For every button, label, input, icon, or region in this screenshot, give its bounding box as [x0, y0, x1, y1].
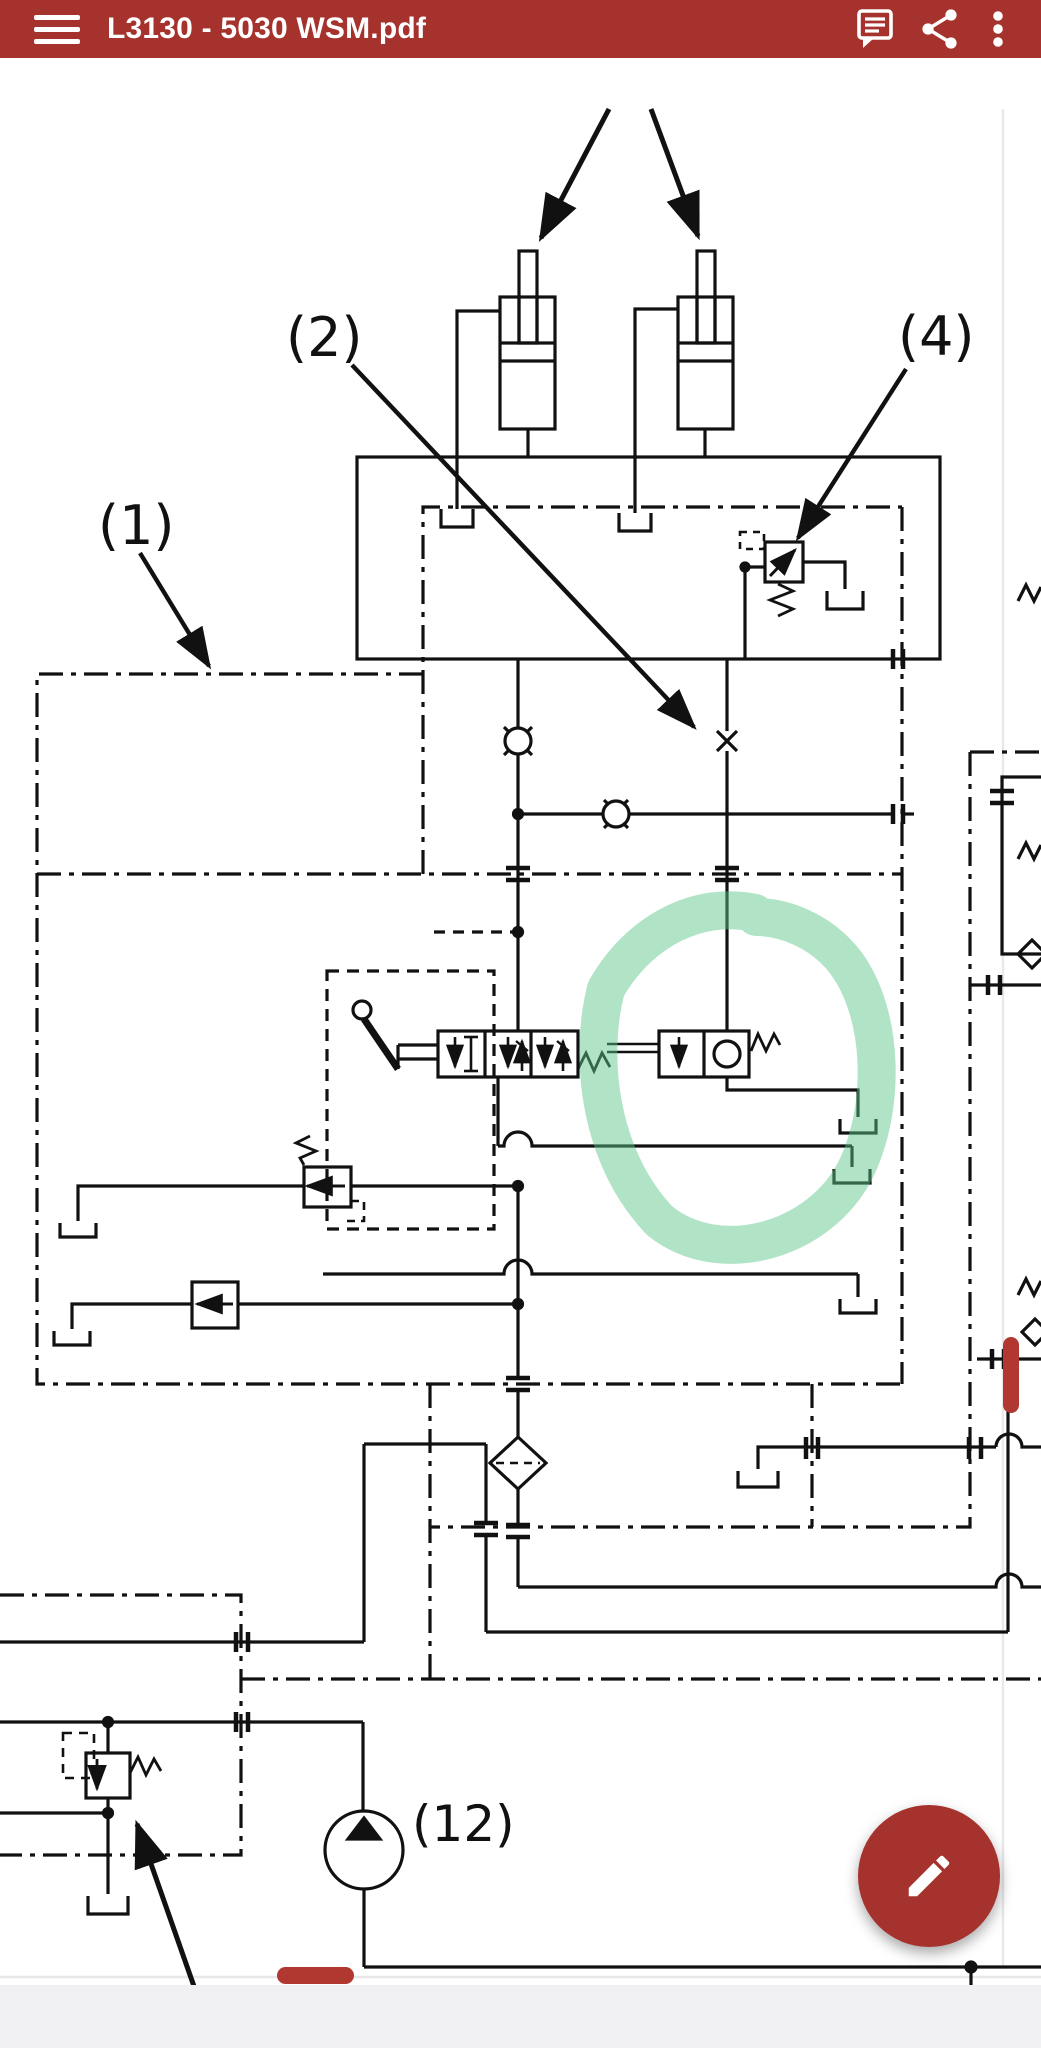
annotations-icon[interactable] — [851, 7, 897, 51]
return-loop — [0, 1359, 1008, 1652]
pdf-page-hydraulic-schematic[interactable]: (1) (2) (4) (12) — [0, 58, 1041, 2048]
relief-valve-4 — [740, 532, 863, 659]
lower-left-valve — [0, 1722, 161, 1914]
hydraulic-cylinder-right — [619, 251, 733, 531]
overflow-menu-icon[interactable] — [983, 7, 1013, 51]
manifold-block — [357, 457, 940, 669]
hydraulic-cylinder-left — [441, 251, 555, 527]
label-4: (4) — [898, 305, 975, 368]
case-drain-line — [738, 1434, 1041, 1487]
share-icon[interactable] — [917, 7, 963, 51]
edit-fab-button[interactable] — [858, 1805, 1000, 1947]
hamburger-menu-icon[interactable] — [34, 7, 80, 51]
system-bottom-strip — [0, 1985, 1041, 2048]
bottom-leader-arrow — [137, 1824, 203, 2012]
check-valve-branch — [518, 800, 914, 828]
callout-labels: (1) (2) (4) (12) — [98, 305, 975, 1853]
valve-drain-line — [498, 1077, 870, 1183]
label-12: (12) — [412, 1795, 515, 1853]
pdf-viewer-screen: L3130 - 5030 WSM.pdf — [0, 0, 1041, 2048]
label-1: (1) — [98, 494, 175, 557]
red-mark-horizontal — [277, 1967, 354, 1984]
document-title: L3130 - 5030 WSM.pdf — [107, 12, 426, 46]
orifice-line — [715, 659, 739, 1031]
top-leader-arrows — [541, 109, 698, 238]
app-bar-actions — [851, 0, 1041, 58]
app-bar: L3130 - 5030 WSM.pdf — [0, 0, 1041, 58]
pencil-edit-icon — [902, 1849, 956, 1903]
relief-valve-left-upper — [60, 1136, 523, 1237]
main-pressure-line — [504, 659, 532, 1031]
unload-valve-block — [659, 1031, 876, 1133]
relief-valve-left-lower — [54, 1282, 523, 1345]
right-page-circuit — [970, 585, 1041, 1369]
red-mark-vertical — [1003, 1337, 1019, 1413]
label-2: (2) — [286, 306, 363, 369]
pump-feed-line — [0, 1712, 363, 1811]
